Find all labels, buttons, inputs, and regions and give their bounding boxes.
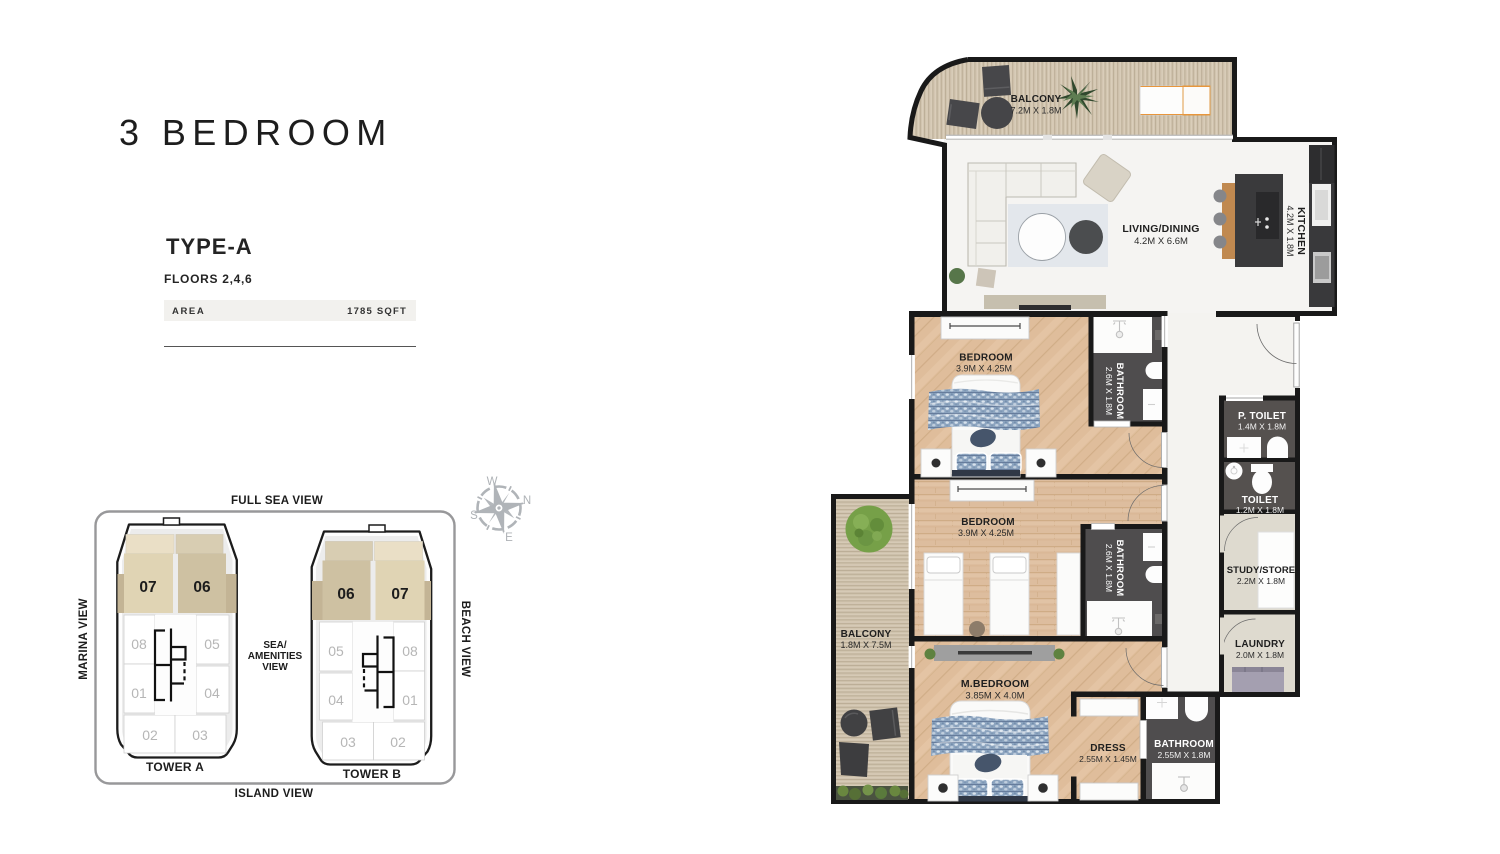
svg-text:FULL SEA VIEW: FULL SEA VIEW <box>231 495 323 507</box>
svg-text:3.9M X 4.25M: 3.9M X 4.25M <box>956 364 1012 374</box>
svg-text:08: 08 <box>131 636 147 652</box>
svg-text:2.6M X 1.8M: 2.6M X 1.8M <box>1104 544 1114 592</box>
svg-text:06: 06 <box>337 586 355 603</box>
svg-text:BATHROOM: BATHROOM <box>1114 540 1125 597</box>
svg-text:3.85M X 4.0M: 3.85M X 4.0M <box>965 691 1024 702</box>
svg-text:BEDROOM: BEDROOM <box>959 353 1013 364</box>
svg-text:03: 03 <box>340 734 356 750</box>
svg-text:DRESS: DRESS <box>1090 743 1126 754</box>
svg-text:ISLAND VIEW: ISLAND VIEW <box>235 788 314 800</box>
svg-text:2.0M X 1.8M: 2.0M X 1.8M <box>1236 650 1284 660</box>
svg-text:VIEW: VIEW <box>262 662 288 673</box>
svg-text:04: 04 <box>328 692 344 708</box>
svg-text:05: 05 <box>328 643 344 659</box>
svg-text:2.2M X 1.8M: 2.2M X 1.8M <box>1237 576 1285 586</box>
svg-text:LAUNDRY: LAUNDRY <box>1235 639 1285 650</box>
svg-text:P. TOILET: P. TOILET <box>1238 411 1286 422</box>
svg-text:S: S <box>470 510 478 522</box>
svg-text:4.2M X 1.8M: 4.2M X 1.8M <box>1285 205 1295 256</box>
svg-text:08: 08 <box>402 643 418 659</box>
svg-text:07: 07 <box>391 586 408 603</box>
svg-text:BATHROOM: BATHROOM <box>1154 739 1214 750</box>
svg-text:TOWER B: TOWER B <box>343 767 402 781</box>
svg-text:E: E <box>505 532 513 544</box>
svg-text:4.2M X 6.6M: 4.2M X 6.6M <box>1134 236 1188 247</box>
svg-text:1.2M X 1.8M: 1.2M X 1.8M <box>1236 505 1284 515</box>
svg-text:2.55M X 1.8M: 2.55M X 1.8M <box>1158 750 1211 760</box>
svg-text:3.9M X 4.25M: 3.9M X 4.25M <box>958 528 1014 538</box>
svg-text:07: 07 <box>139 579 156 596</box>
svg-text:02: 02 <box>142 727 158 743</box>
svg-text:1.8M X 7.5M: 1.8M X 7.5M <box>840 640 891 650</box>
svg-text:06: 06 <box>193 579 211 596</box>
svg-text:W: W <box>487 476 498 488</box>
svg-text:2.55M X 1.45M: 2.55M X 1.45M <box>1079 754 1137 764</box>
svg-text:2.6M X 1.8M: 2.6M X 1.8M <box>1104 367 1114 415</box>
svg-text:01: 01 <box>402 692 418 708</box>
svg-text:7.2M X 1.8M: 7.2M X 1.8M <box>1010 106 1061 116</box>
svg-text:N: N <box>523 495 531 507</box>
svg-text:BATHROOM: BATHROOM <box>1114 363 1125 420</box>
svg-text:AMENITIES: AMENITIES <box>248 651 303 662</box>
svg-text:BALCONY: BALCONY <box>841 629 892 640</box>
svg-text:BALCONY: BALCONY <box>1011 94 1062 105</box>
svg-text:02: 02 <box>390 734 406 750</box>
svg-text:BEACH VIEW: BEACH VIEW <box>459 601 471 677</box>
svg-text:BEDROOM: BEDROOM <box>961 517 1015 528</box>
svg-text:1.4M X 1.8M: 1.4M X 1.8M <box>1238 422 1286 432</box>
svg-text:TOWER A: TOWER A <box>146 760 204 774</box>
svg-text:LIVING/DINING: LIVING/DINING <box>1122 223 1199 235</box>
svg-text:04: 04 <box>204 685 220 701</box>
svg-text:KITCHEN: KITCHEN <box>1295 207 1307 255</box>
svg-text:05: 05 <box>204 636 220 652</box>
svg-text:M.BEDROOM: M.BEDROOM <box>961 678 1029 690</box>
svg-text:03: 03 <box>192 727 208 743</box>
svg-text:SEA/: SEA/ <box>263 640 287 651</box>
svg-text:MARINA VIEW: MARINA VIEW <box>78 598 90 679</box>
svg-text:STUDY/STORE: STUDY/STORE <box>1227 565 1296 576</box>
svg-text:01: 01 <box>131 685 147 701</box>
